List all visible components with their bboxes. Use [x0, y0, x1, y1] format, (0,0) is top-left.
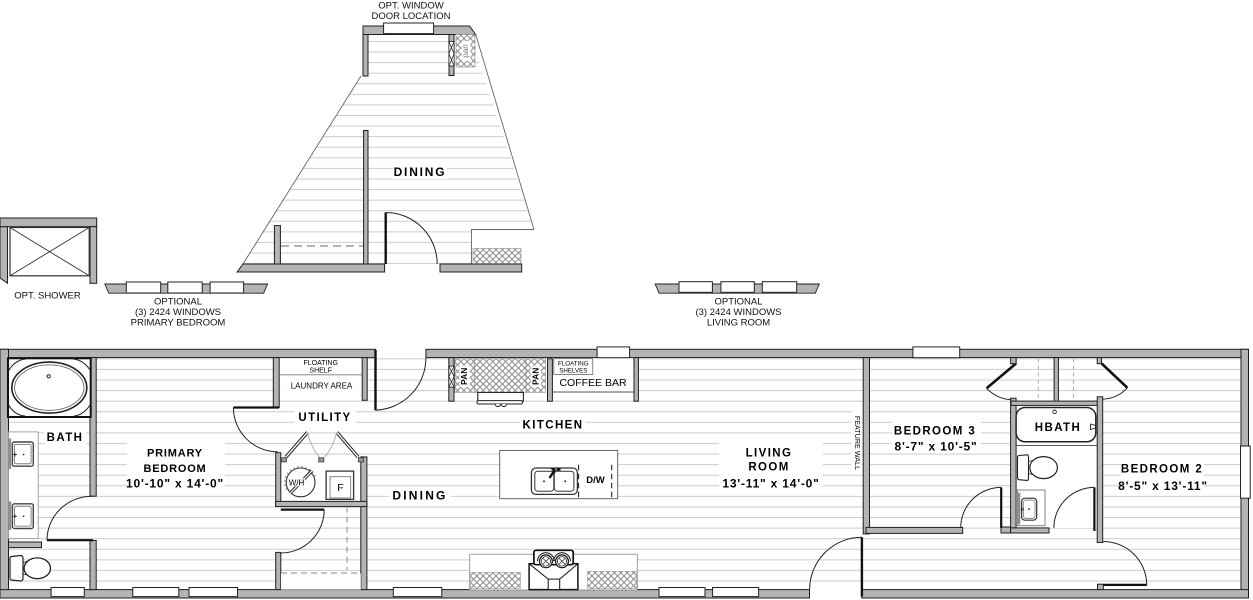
- svg-text:(3) 2424 WINDOWS: (3) 2424 WINDOWS: [695, 307, 781, 318]
- svg-text:13'-11" x 14'-0": 13'-11" x 14'-0": [722, 476, 819, 490]
- svg-text:UTILITY: UTILITY: [298, 412, 351, 424]
- svg-text:OPT. WINDOW: OPT. WINDOW: [378, 1, 443, 12]
- svg-text:KITCHEN: KITCHEN: [523, 420, 584, 432]
- svg-text:BEDROOM: BEDROOM: [143, 463, 206, 475]
- svg-text:BEDROOM 2: BEDROOM 2: [1121, 464, 1203, 476]
- svg-text:8'-7" x 10'-5": 8'-7" x 10'-5": [895, 440, 978, 454]
- svg-text:COFFEE BAR: COFFEE BAR: [559, 377, 627, 389]
- svg-text:W/H: W/H: [289, 478, 305, 487]
- svg-text:LIVING: LIVING: [746, 448, 793, 460]
- svg-text:OPTIONAL: OPTIONAL: [714, 297, 762, 308]
- svg-text:ROOM: ROOM: [748, 462, 789, 474]
- svg-text:pan: pan: [461, 44, 470, 57]
- svg-text:OPTIONAL: OPTIONAL: [154, 297, 202, 308]
- svg-text:FLOATING: FLOATING: [303, 360, 337, 367]
- svg-text:8'-5" x 13'-11": 8'-5" x 13'-11": [1118, 479, 1208, 493]
- svg-text:OPT. SHOWER: OPT. SHOWER: [14, 291, 81, 302]
- svg-text:FEATURE WALL: FEATURE WALL: [853, 416, 862, 470]
- svg-text:SHELF: SHELF: [309, 368, 332, 375]
- svg-text:DOOR LOCATION: DOOR LOCATION: [372, 11, 451, 22]
- svg-text:PAN: PAN: [459, 368, 469, 385]
- svg-text:LIVING ROOM: LIVING ROOM: [707, 318, 770, 329]
- svg-text:SHELVES: SHELVES: [559, 367, 587, 374]
- svg-text:PRIMARY: PRIMARY: [147, 448, 203, 460]
- svg-text:F: F: [337, 482, 343, 494]
- svg-text:D/W: D/W: [586, 475, 605, 486]
- svg-text:DINING: DINING: [394, 165, 447, 179]
- svg-text:PAN: PAN: [531, 368, 541, 385]
- svg-text:BATH: BATH: [47, 432, 84, 444]
- svg-text:(3) 2424 WINDOWS: (3) 2424 WINDOWS: [135, 307, 221, 318]
- svg-text:PRIMARY BEDROOM: PRIMARY BEDROOM: [131, 318, 226, 329]
- svg-text:DINING: DINING: [392, 489, 447, 503]
- svg-text:10'-10" x 14'-0": 10'-10" x 14'-0": [126, 477, 224, 491]
- svg-text:BEDROOM 3: BEDROOM 3: [894, 426, 976, 438]
- svg-text:LAUNDRY AREA: LAUNDRY AREA: [291, 382, 353, 391]
- svg-text:HBATH: HBATH: [1035, 422, 1081, 434]
